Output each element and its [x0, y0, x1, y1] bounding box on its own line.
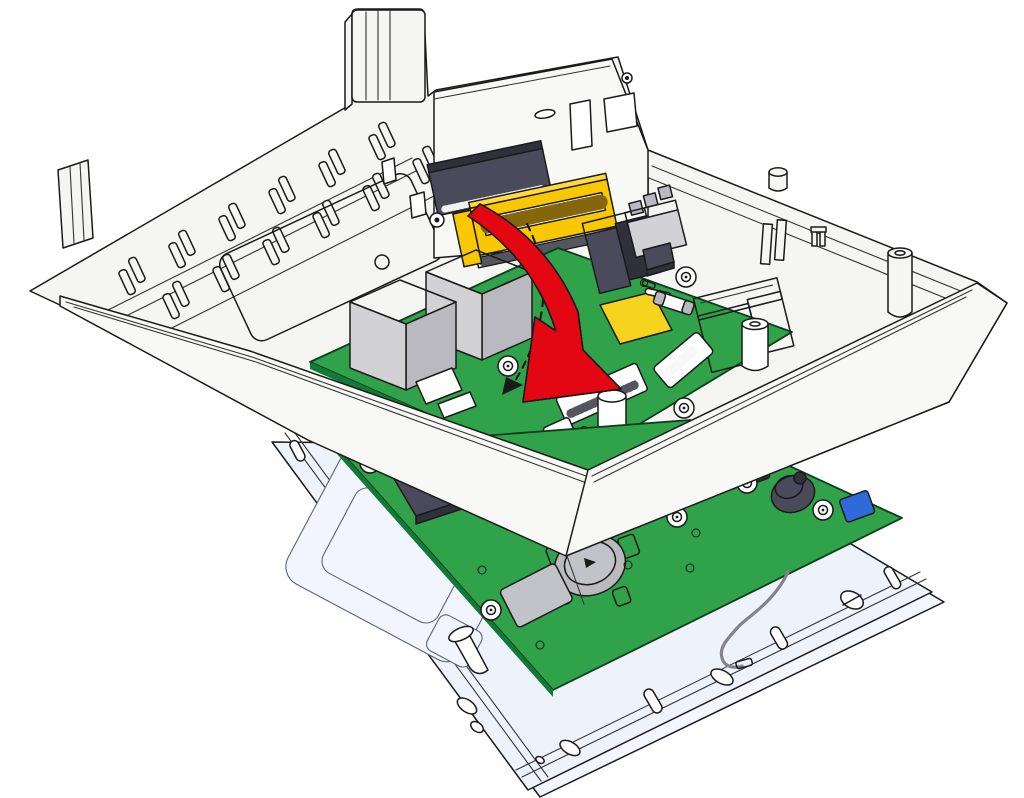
corner-post [888, 248, 912, 317]
washer [498, 356, 518, 376]
mounting-tab-top [345, 10, 425, 110]
standoff [742, 319, 768, 371]
assembly-illustration [0, 0, 1024, 798]
screw [813, 500, 833, 520]
washer [674, 398, 694, 418]
mounting-tab-left [58, 160, 93, 248]
screw [481, 600, 501, 620]
washer [676, 267, 696, 287]
assembly-drawing [0, 0, 1024, 798]
